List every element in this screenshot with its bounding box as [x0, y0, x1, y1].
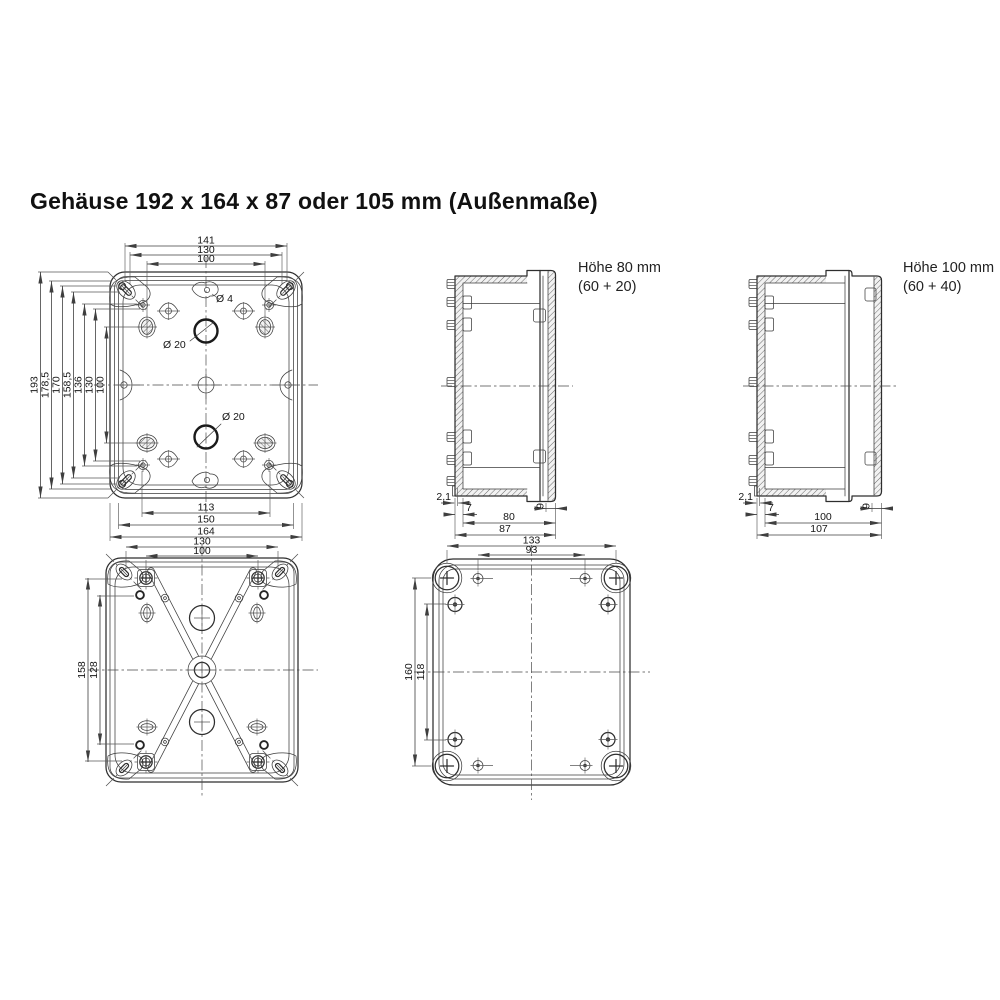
view-side-100: Höhe 100 mm (60 + 40) 2,1 7 100 107 9 [738, 260, 994, 539]
side100-caption-line2: (60 + 40) [903, 279, 961, 295]
view-front-inside: Ø 4 Ø 20 Ø 20 141 130 100 113 150 164 [29, 235, 319, 542]
view-side-80: Höhe 80 mm (60 + 20) 2,1 7 80 87 9 [436, 260, 661, 539]
dim-side80-flange: 7 [466, 502, 472, 514]
dim-side100-depth: 100 [814, 511, 832, 523]
dim-back-left-158: 158 [76, 661, 88, 679]
front-label-d4: Ø 4 [216, 293, 233, 305]
side100-caption-line1: Höhe 100 mm [903, 260, 994, 276]
view-back-ribs: 130 100 158 128 [76, 536, 318, 798]
page-title: Gehäuse 192 x 164 x 87 oder 105 mm (Auße… [30, 188, 598, 215]
dim-front-bottom-150: 150 [197, 514, 215, 526]
dim-cover-top-93: 93 [526, 544, 538, 556]
dim-side100-total: 107 [810, 523, 828, 535]
drawing-sheet: Gehäuse 192 x 164 x 87 oder 105 mm (Auße… [0, 0, 1000, 1000]
dim-side80-wall: 2,1 [436, 491, 451, 503]
dim-back-top-100: 100 [193, 545, 211, 557]
dim-side80-depth: 80 [503, 511, 515, 523]
dim-back-left-128: 128 [88, 661, 100, 679]
side80-caption-line2: (60 + 20) [578, 279, 636, 295]
dim-side100-wall: 2,1 [738, 491, 753, 503]
dim-front-bottom-113: 113 [198, 502, 215, 514]
dim-front-top-100: 100 [197, 253, 215, 265]
dim-side100-flange: 7 [768, 502, 774, 514]
side80-caption-line1: Höhe 80 mm [578, 260, 661, 276]
dim-cover-left-118: 118 [415, 663, 427, 680]
dim-side100-lid: 9 [861, 503, 873, 509]
dim-cover-left-160: 160 [403, 663, 415, 681]
view-cover: 133 93 160 118 [403, 535, 650, 801]
dim-side80-lid: 9 [535, 503, 547, 509]
front-label-d20-top: Ø 20 [163, 339, 186, 351]
dim-front-left-100: 100 [95, 376, 107, 394]
technical-drawing: Ø 4 Ø 20 Ø 20 141 130 100 113 150 164 [0, 0, 1000, 1000]
dim-side80-total: 87 [499, 523, 511, 535]
front-label-d20-bottom: Ø 20 [222, 411, 245, 423]
